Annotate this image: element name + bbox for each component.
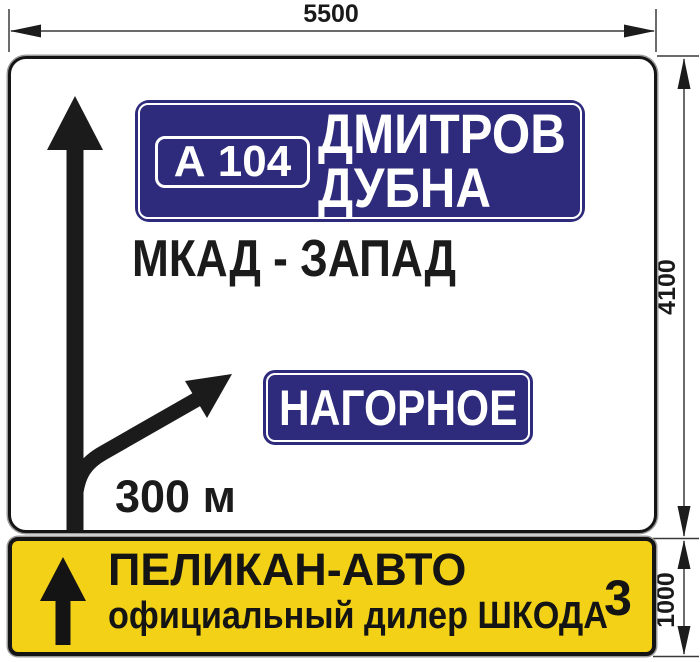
destination-panel: А 104 ДМИТРОВ ДУБНА [135, 100, 585, 222]
dimension-arrow-left-icon [10, 25, 41, 38]
route-number-label: А 104 [174, 137, 291, 187]
dealer-name-label: ПЕЛИКАН-АВТО [108, 546, 663, 594]
up-arrow-icon [38, 557, 88, 647]
dealer-route-number: 3 [595, 569, 641, 627]
dealer-subtitle-label: официальный дилер ШКОДА [108, 594, 608, 638]
road-name-label: МКАД - ЗАПАД [132, 231, 456, 287]
branch-destination-panel: НАГОРНОЕ [263, 370, 533, 445]
dimension-arrow-up-icon [678, 540, 691, 569]
road-sign-drawing: 5500 4100 1000 А 104 ДМИТРОВ ДУБНА [0, 0, 700, 662]
dimension-arrow-down-icon [678, 626, 691, 655]
dimension-width-label: 5500 [281, 0, 381, 28]
destination-line: ДМИТРОВ [318, 107, 566, 161]
dimension-arrow-up-icon [678, 58, 691, 89]
dimension-arrow-down-icon [678, 506, 691, 537]
branch-destination-label: НАГОРНОЕ [279, 379, 517, 437]
route-number-badge: А 104 [155, 136, 310, 188]
destination-names: ДМИТРОВ ДУБНА [318, 107, 600, 215]
destination-line: ДУБНА [318, 161, 566, 215]
dimension-arrow-right-icon [624, 25, 655, 38]
main-sign-board: А 104 ДМИТРОВ ДУБНА МКАД - ЗАПАД НАГОРНО… [8, 56, 657, 533]
distance-label: 300 м [115, 471, 236, 523]
dealer-panel: ПЕЛИКАН-АВТО официальный дилер ШКОДА 3 [8, 537, 656, 656]
dealer-text: ПЕЛИКАН-АВТО официальный дилер ШКОДА [108, 546, 663, 638]
